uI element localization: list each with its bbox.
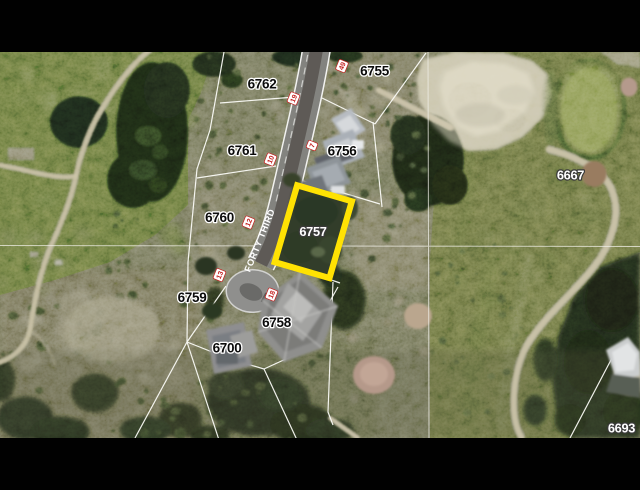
svg-text:6755: 6755 bbox=[360, 64, 390, 79]
svg-text:6758: 6758 bbox=[262, 315, 292, 330]
svg-text:6667: 6667 bbox=[557, 168, 584, 183]
svg-text:6759: 6759 bbox=[178, 290, 207, 305]
svg-text:6762: 6762 bbox=[248, 77, 277, 92]
svg-text:6760: 6760 bbox=[205, 210, 234, 225]
svg-text:6761: 6761 bbox=[228, 143, 258, 158]
svg-text:6757: 6757 bbox=[299, 224, 326, 239]
svg-text:6700: 6700 bbox=[213, 341, 242, 356]
svg-text:6756: 6756 bbox=[328, 144, 358, 159]
svg-text:6693: 6693 bbox=[608, 421, 635, 436]
